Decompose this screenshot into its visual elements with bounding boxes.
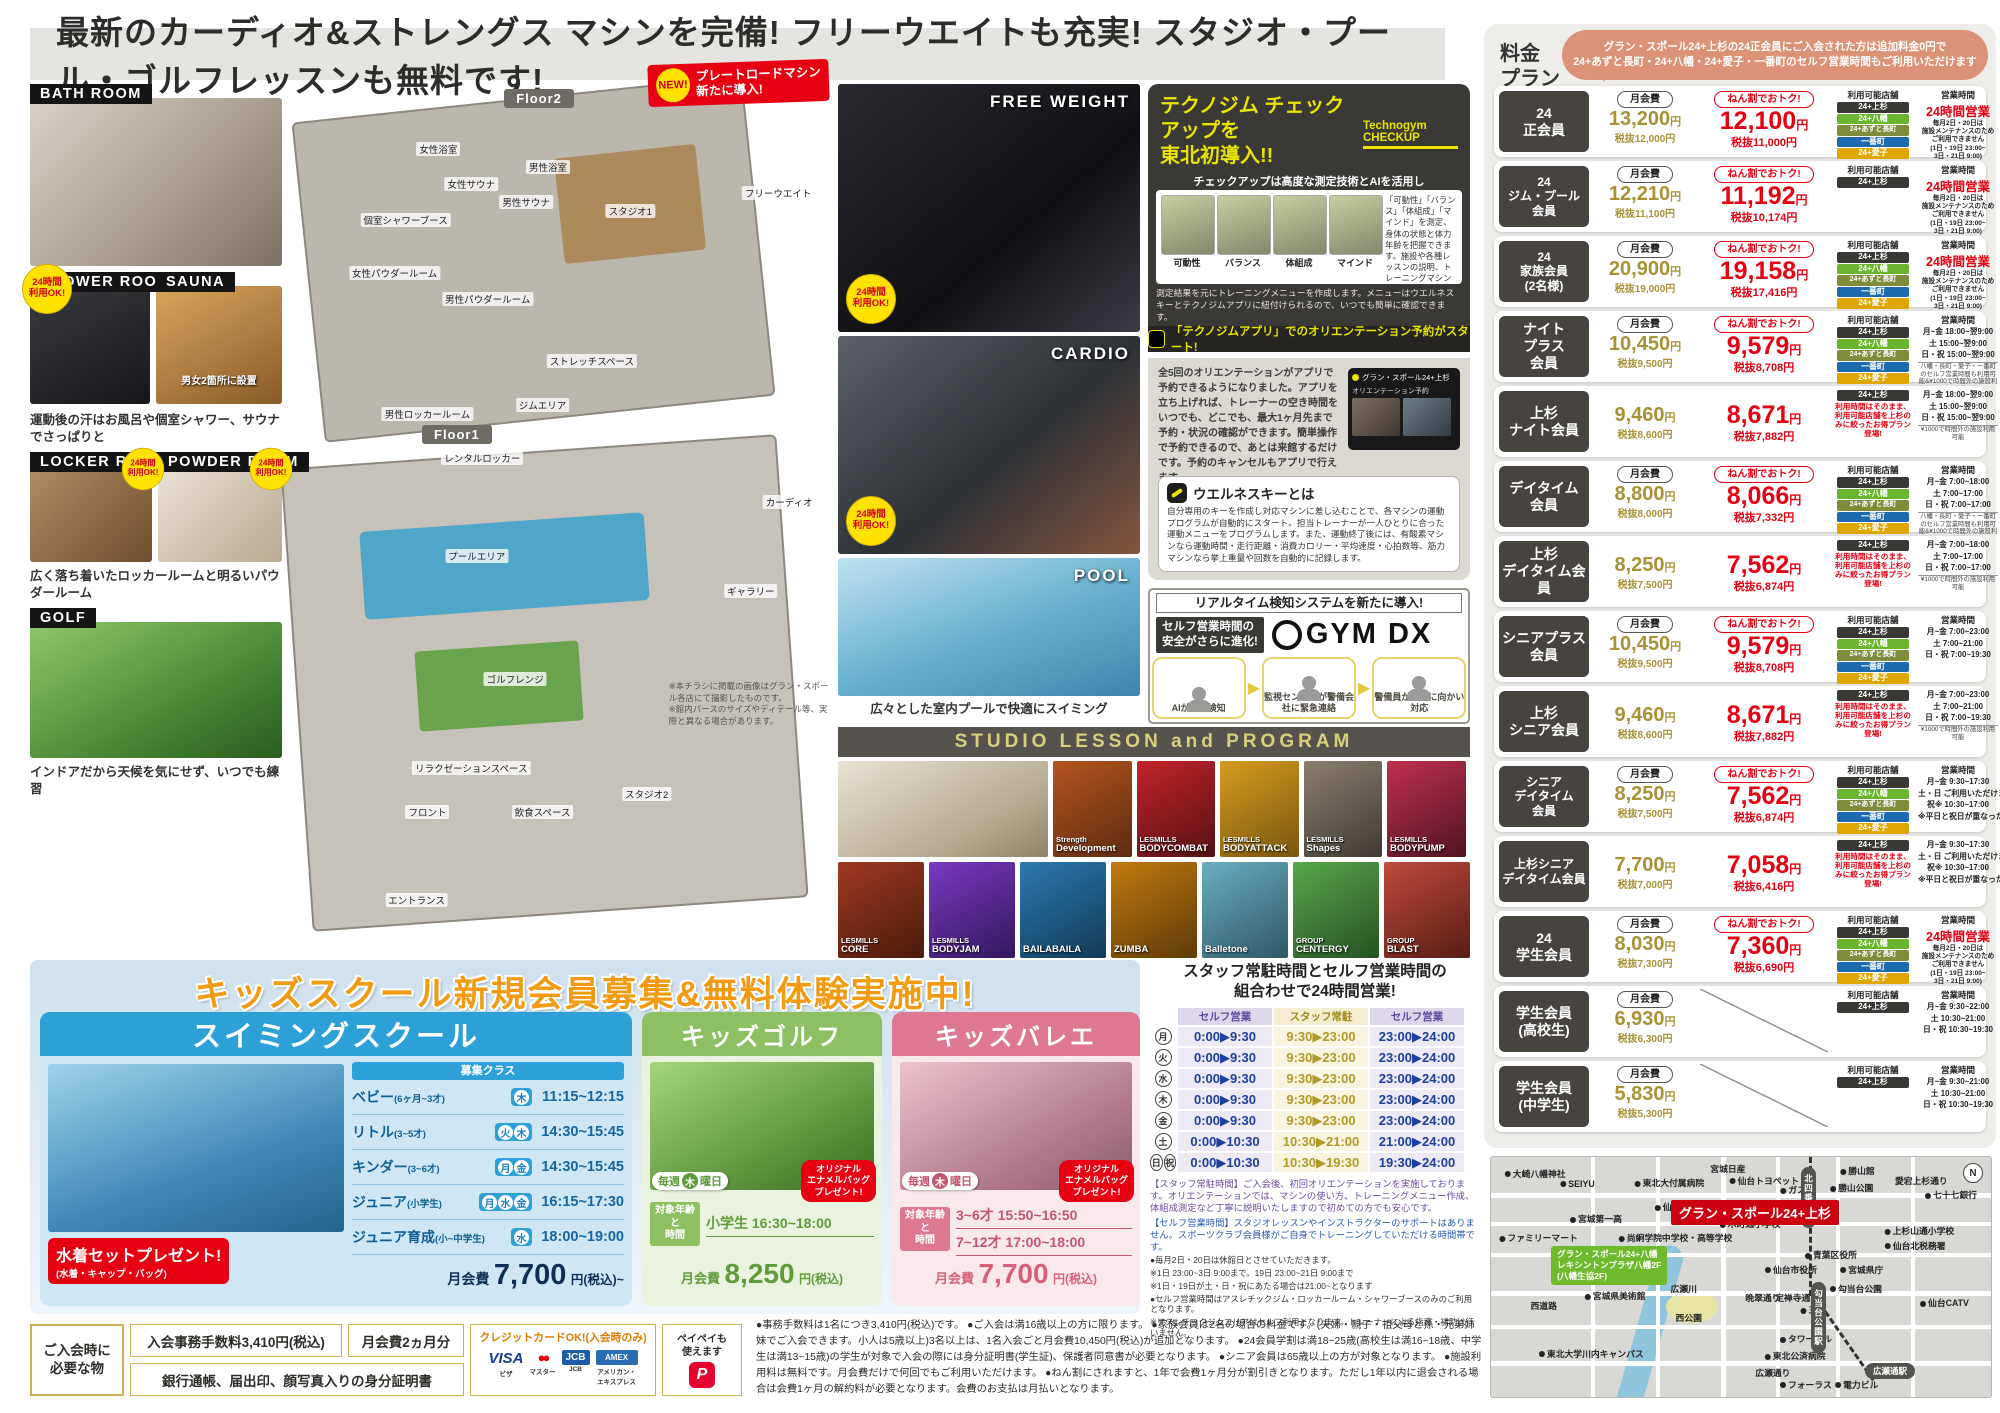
nen-price: 8,671円 [1700,702,1828,728]
hours-line: 毎月2日・20日は [1918,270,1998,278]
yen-label: 円 [1665,1016,1676,1028]
nen-price-value: 12,100 [1720,107,1796,135]
floor-room-label: 男性ロッカールーム [382,407,473,421]
monthly-price-value: 8,250 [1614,783,1664,805]
swim-class-row: ジュニア(小学生)月水金16:15~17:30 [352,1185,624,1220]
hours-header: 営業時間 [1918,239,1998,251]
yen-label: 円 [1789,643,1801,657]
technogym-measure-box: 可動性バランス体組成マインド 「可動性」「バランス」「体組成」「マインド」を測定… [1156,190,1462,284]
schedule-row: 木0:00▶9:309:30▶23:0023:00▶24:00 [1150,1090,1480,1109]
cardio-photo: CARDIO 24時間利用OK! [838,336,1140,554]
nen-price: 8,671円 [1700,402,1828,428]
footer-monthly-box: 月会費2ヵ月分 [348,1324,464,1357]
gymdx-arrow-icon: ▶ [1248,678,1260,698]
technogym-title-line1: テクノジム チェックアップを [1160,94,1363,144]
hours-line: ※平日と祝日が重なった場合 [1918,874,1998,886]
store-chip: 一番町 [1837,662,1909,673]
footer-credit-box: クレジットカードOK!(入会時のみ) VISAビザ●●マスターJCBJCBAME… [470,1324,656,1396]
person-icon [1302,676,1316,690]
technogym-panel: テクノジム チェックアップを 東北初導入!! Technogym CHECKUP… [1148,84,1470,352]
map-place-label: 青葉区役所 [1805,1248,1857,1261]
nen-price: 7,058円 [1700,852,1828,878]
map-place-dot [1780,1337,1786,1343]
plan-stores-col: 利用可能店舗24+上杉24+八幡24+あずと長町一番町24+愛子 [1832,914,1914,984]
plan-nen-col: ねん割でおトク!12,100円税抜11,000円 [1700,89,1828,150]
swim-present-sub: (水着・キャップ・バッグ) [56,1266,221,1280]
store-chip: 24+あずと長町 [1837,950,1909,961]
app-screenshot: グラン・スポール24+上杉 オリエンテーション予約 [1348,368,1460,450]
plan-name-line: 学生会員 [1516,947,1572,964]
map-place-label: 東北大学川内キャンパス [1539,1347,1644,1360]
hours-header: 営業時間 [1918,989,1998,1001]
plan-stores-col: 利用可能店舗24+上杉 [1832,989,1914,1013]
app-shot-thumb [1403,398,1451,436]
map-place-label: SEIYU [1560,1179,1594,1189]
plan-nen-col: 7,058円税抜6,416円 [1700,839,1828,894]
wellness-key-title: ウエルネスキーとは [1193,483,1315,503]
schedule-time-cell: 0:00▶9:30 [1178,1027,1272,1046]
floor-room-label: 個室シャワーブース [360,213,450,227]
floor-room-label: リラクゼーションスペース [412,761,530,775]
day-circle: 金 [514,1195,529,1210]
stores-header: 利用可能店舗 [1832,89,1914,101]
price-panel: 料金プラン 24正会員月会費13,200円税抜12,000円ねん割でおトク!12… [1484,24,1996,1148]
store-chip: 24+上杉 [1837,840,1909,851]
stores-header: 利用可能店舗 [1832,1064,1914,1076]
yen-label: 円 [1665,862,1676,874]
plan-nen-col: 7,562円税抜6,874円 [1700,539,1828,594]
swim-photo [48,1064,344,1232]
floor-room-label: 女性サウナ [445,177,499,191]
hours-24-big: 24時間営業 [1918,251,1998,270]
hours-line: 3日・21日 9:00) [1918,303,1998,311]
kids-class-row: 小学生 16:30~18:00 [706,1210,874,1237]
monthly-price-value: 8,800 [1614,483,1664,505]
day-circle: 祝 [1164,1154,1177,1171]
price-plan-row: 24正会員月会費13,200円税抜12,000円ねん割でおトク!12,100円税… [1494,86,1986,157]
store-chip: 24+上杉 [1837,1002,1909,1013]
price-plan-row: シニアデイタイム会員月会費8,250円税抜7,500円ねん割でおトク!7,562… [1494,761,1986,832]
map-place-dot [1539,1351,1545,1357]
card-logo-item: ●●マスター [530,1350,556,1376]
plan-nen-col: ねん割でおトク!9,579円税抜8,708円 [1700,614,1828,675]
price-plan-row: デイタイム会員月会費8,800円税抜8,000円ねん割でおトク!8,066円税抜… [1494,461,1986,532]
schedule-time-cell: 23:00▶24:00 [1370,1090,1464,1109]
monthly-fee-header: 月会費 [1617,766,1673,783]
map-place-label: フォーラス [1780,1378,1832,1391]
schedule-time-cell: 10:30▶19:30 [1274,1153,1368,1172]
plan-name-line: 会員 [1530,497,1558,514]
plan-name-line: 上杉 [1530,405,1558,422]
monthly-tax-line: 税抜9,500円 [1593,355,1697,370]
gymdx-step: 監視センターが警備会社に緊急連絡 [1262,657,1356,719]
day-circle: 日 [1150,1154,1163,1171]
gymdx-panel: リアルタイム検知システムを新たに導入! セルフ営業時間の 安全がさらに進化! G… [1148,588,1470,724]
day-circle: 月 [1155,1028,1172,1045]
map-road [1491,1325,1991,1329]
schedule-header-cell: セルフ営業 [1370,1008,1464,1025]
map-place-dot [1800,1308,1806,1314]
program-name-label: Balletone [1205,945,1285,955]
plan-name-line: 正会員 [1523,122,1565,139]
hours-line: 月~金 7:00~18:00 [1918,476,1998,488]
class-days: 木 [511,1088,532,1106]
plan-hours-col: 月~金 18:00~翌9:00土 15:00~翌9:00日・祝 15:00~翌9… [1918,389,1998,441]
program-name-label: BODYPUMP [1390,844,1463,854]
price-plan-row: ナイトプラス会員月会費10,450円税抜9,500円ねん割でおトク!9,579円… [1494,311,1986,382]
hours-24-big: 24時間営業 [1918,101,1998,120]
studio-program-tile: Balletone [1202,862,1288,958]
card-logo-sub: マスター [530,1366,556,1376]
schedule-day: 木 [1150,1091,1176,1108]
technogym-item-label: 体組成 [1273,256,1325,269]
map-station-pill: 広瀬通駅 [1865,1363,1915,1379]
plan-monthly-col: 月会費5,830円税抜5,300円 [1593,1064,1697,1120]
plan-name-line: (2名様) [1525,279,1564,293]
day-circle: 月 [482,1195,497,1210]
nen-price-value: 8,066 [1727,482,1790,510]
schedule-time-cell: 0:00▶9:30 [1178,1069,1272,1088]
footer-required-label: ご入会時に必要な物 [30,1324,124,1396]
monthly-header-space [1593,389,1697,404]
floor-room-label: 男性パウダールーム [442,292,533,306]
schedule-time-cell: 0:00▶9:30 [1178,1048,1272,1067]
monthly-price-value: 20,900 [1609,258,1670,280]
store-chip: 24+八幡 [1837,489,1909,500]
plan-stores-col: 利用可能店舗24+上杉24+八幡24+あずと長町一番町24+愛子 [1832,314,1914,384]
nen-header: ねん割でおトク! [1714,241,1813,258]
hours-line: 土 7:00~21:00 [1918,638,1998,650]
nen-header: ねん割でおトク! [1714,916,1813,933]
card-logo: ●● [530,1350,556,1365]
map-place-label: 仙台CATV [1920,1296,1969,1309]
swim-fee: 月会費 7,700 円(税込)~ [352,1259,624,1292]
map-place-label: 西道路 [1530,1299,1556,1312]
yen-label: 円 [1670,266,1681,278]
kids-golf-target: 対象年齢と時間 小学生 16:30~18:00 [650,1202,874,1246]
target-label: 対象年齢と時間 [650,1202,700,1246]
program-name-label: Development [1056,844,1129,854]
floor-room-label: スタジオ2 [622,787,671,801]
wellness-key-box: ウエルネスキーとは 自分専用のキーを作成し対応マシンに差し込むことで、各マシンの… [1158,476,1460,572]
stores-header: 利用可能店舗 [1832,464,1914,476]
class-name: キンダー [352,1159,408,1175]
hours-line: 土 7:00~21:00 [1918,701,1998,713]
weekly-prefix: 毎週 [908,1173,930,1189]
hours-line: ご利用できません [1918,286,1998,294]
day-circle: 土 [1155,1133,1172,1150]
gymdx-logo-text: GYM DX [1306,618,1432,651]
floor-room-label: 女性浴室 [416,142,460,156]
floor-room-label: ゴルフレンジ [484,672,547,686]
footer-docs-box: 銀行通帳、届出印、顔写真入りの身分証明書 [130,1363,464,1396]
yen-label: 円 [1789,712,1801,726]
plan-name-line: 会員 [1530,355,1558,372]
floor-disclaimer-line1: ※本チラシに掲載の画像はグラン・スポール各店にて撮影したものです。 [669,681,833,704]
map-place-label: 尚絅学院中学校・高等学校 [1619,1231,1733,1244]
gymdx-arrow-icon: ▶ [1358,678,1370,698]
floor2-chip: Floor2 [504,89,574,108]
price-plan-row: 上杉ナイト会員9,460円税抜8,600円8,671円税抜7,882円24+上杉… [1494,386,1986,457]
day-circle: 火 [498,1125,513,1140]
monthly-tax-line: 税抜7,300円 [1593,955,1697,970]
plan-name-line: シニア [1526,775,1562,789]
yen-label: 円 [1665,562,1676,574]
swim-fee-value: 7,700 [494,1259,567,1291]
kids-ballet-weekday-badge: 毎週 木 曜日 [902,1172,978,1190]
monthly-price: 7,700円 [1593,854,1697,876]
sauna-photo: 男女2箇所に設置 [156,286,282,404]
monthly-tax-line: 税抜8,600円 [1593,426,1697,441]
hours-line: (1日・19日 23:00~ [1918,145,1998,153]
plan-name-line: ナイト会員 [1509,422,1579,439]
app-shot-titlebar: グラン・スポール24+上杉 [1352,372,1456,383]
studio-program-tile: GROUPBLAST [1384,862,1470,958]
plan-monthly-col: 月会費20,900円税抜19,000円 [1593,239,1697,295]
hours-line: 日・祝 7:00~19:30 [1918,712,1998,724]
program-name-label: BODYATTACK [1223,844,1296,854]
monthly-tax-line: 税抜12,000円 [1593,130,1697,145]
yen-label: 円 [1789,943,1801,957]
map-road [1721,1157,1726,1397]
new-badge: NEW! [655,68,690,103]
map-place-dot [1780,1188,1786,1194]
monthly-price-value: 13,200 [1609,108,1670,130]
app-shot-logo-dot [1352,374,1359,381]
store-chip: 24+上杉 [1837,477,1909,488]
monthly-fee-header: 月会費 [1617,1066,1673,1083]
plan-nen-col: ねん割でおトク!9,579円税抜8,708円 [1700,314,1828,375]
map-place-label: 東北大付属病院 [1635,1176,1705,1189]
map-place-dot [1560,1181,1566,1187]
studio-program-grid: StrengthDevelopmentLESMILLSBODYCOMBATLES… [838,761,1470,958]
plan-stores-col: 利用可能店舗24+上杉24+八幡24+あずと長町一番町24+愛子 [1832,764,1914,834]
map-place-label: 勝山館 [1840,1164,1874,1177]
kids-golf-title: キッズゴルフ [642,1012,882,1056]
swim-class-row: リトル(3~5才)火木14:30~15:45 [352,1115,624,1150]
map-place-label: ファミリーマート [1499,1231,1577,1244]
monthly-fee-header: 月会費 [1617,616,1673,633]
nen-header: ねん割でおトク! [1714,316,1813,333]
new-tag-text: プレートロードマシン 新たに導入! [696,65,822,99]
map-place-dot [1730,1178,1736,1184]
floor-disclaimer: ※本チラシに掲載の画像はグラン・スポール各店にて撮影したものです。 ※館内パース… [669,681,833,727]
plan-stores-col: 利用可能店舗24+上杉24+八幡24+あずと長町一番町24+愛子 [1832,614,1914,684]
plan-name-line: 上杉 [1530,705,1558,722]
studio-program-tile: LESMILLSCORE [838,862,924,958]
map-place-dot [1765,1267,1771,1273]
store-chip: 24+あずと長町 [1837,275,1909,286]
technogym-item-photo [1273,195,1327,255]
plan-hours-col: 営業時間月~金 7:00~18:00土 7:00~17:00日・祝 7:00~1… [1918,464,1998,543]
store-chip: 24+愛子 [1837,523,1909,534]
nen-header: ねん割でおトク! [1714,766,1813,783]
schedule-time-cell: 23:00▶24:00 [1370,1069,1464,1088]
monthly-price: 13,200円 [1593,108,1697,130]
cardio-label: CARDIO [1051,344,1130,364]
monthly-price-value: 12,210 [1609,183,1670,205]
nen-tax-line: 税抜6,690円 [1700,959,1828,975]
plan-name-line: シニア会員 [1509,722,1579,739]
class-name: ジュニア [352,1194,407,1210]
plan-nen-col: ねん割でおトク!11,192円税抜10,174円 [1700,164,1828,225]
hours-line: 日・祝 7:00~17:00 [1918,499,1998,511]
plan-monthly-col: 月会費10,450円税抜9,500円 [1593,314,1697,370]
schedule-header-row: セルフ営業スタッフ常駐セルフ営業 [1178,1008,1480,1025]
monthly-header-space [1593,689,1697,704]
monthly-tax-line: 税抜6,300円 [1593,1030,1697,1045]
monthly-tax-line: 税抜7,000円 [1593,876,1697,891]
class-name: リトル [352,1124,394,1140]
gymdx-left-line1: セルフ営業時間の [1162,621,1254,633]
schedule-day: 金 [1150,1112,1176,1129]
plan-hours-col: 月~金 7:00~18:00土 7:00~17:00日・祝 7:00~17:00… [1918,539,1998,591]
nen-tax-line: 税抜6,416円 [1700,878,1828,894]
class-age: (3~5才) [394,1129,426,1140]
swim-title: スイミングスクール [40,1012,632,1056]
nen-header: ねん割でおトク! [1714,91,1813,108]
monthly-price: 20,900円 [1593,258,1697,280]
store-chip: 24+上杉 [1837,690,1909,701]
gymdx-logo: GYM DX [1272,618,1432,651]
monthly-price: 8,250円 [1593,554,1697,576]
monthly-tax-line: 税抜8,600円 [1593,726,1697,741]
store-chip: 24+八幡 [1837,339,1909,350]
footer-paypay-box: ペイペイも使えます P [662,1324,742,1396]
stores-header: 利用可能店舗 [1832,989,1914,1001]
monthly-fee-header: 月会費 [1617,916,1673,933]
program-name-label: CENTERGY [1296,945,1376,955]
technogym-item-label: 可動性 [1161,256,1213,269]
badge-24h-powder: 24時間利用OK! [250,448,293,491]
day-circle: 火 [1155,1049,1172,1066]
credit-title: クレジットカードOK!(入会時のみ) [479,1329,646,1345]
hours-line: 日・祝 7:00~17:00 [1918,562,1998,574]
nen-header: ねん割でおトク! [1714,616,1813,633]
nen-tax-line: 税抜7,332円 [1700,509,1828,525]
sauna-note: 男女2箇所に設置 [156,286,282,387]
store-chip: 24+あずと長町 [1837,650,1909,661]
swim-class-row: キンダー(3~6才)月金14:30~15:45 [352,1150,624,1185]
schedule-panel: スタッフ常駐時間とセルフ営業時間の組合わせで24時間営業! セルフ営業スタッフ常… [1150,962,1480,1341]
plan-name: シニアデイタイム会員 [1499,766,1589,827]
hours-line: 月~金 18:00~翌9:00 [1918,326,1998,338]
schedule-note: 【スタッフ常駐時間】ご入会後、初回オリエンテーションを実施しております。オリエン… [1150,1178,1480,1214]
hours-line: 日・祝 7:00~19:30 [1918,649,1998,661]
class-age: (小~中学生) [435,1234,485,1245]
hours-line: 月~金 18:00~翌9:00 [1918,389,1998,401]
hours-line: 月~金 9:30~22:00 [1918,1001,1998,1013]
map-place-label: 宮城第一高 [1570,1212,1622,1225]
plan-hours-col: 営業時間月~金 18:00~翌9:00土 15:00~翌9:00日・祝 15:0… [1918,314,1998,393]
hours-line: 日・祝 10:30~19:30 [1918,1099,1998,1111]
schedule-header-cell: スタッフ常駐 [1274,1008,1368,1025]
weekly-day: 木 [682,1173,698,1189]
store-chip: 24+愛子 [1837,148,1909,159]
monthly-price: 12,210円 [1593,183,1697,205]
map-place-dot [1635,1181,1641,1187]
schedule-row: 火0:00▶9:309:30▶23:0023:00▶24:00 [1150,1048,1480,1067]
map-place-dot [1805,1253,1811,1259]
floor-room-label: エントランス [385,893,448,907]
monthly-tax-line: 税抜5,300円 [1593,1105,1697,1120]
nen-price-value: 9,579 [1727,632,1790,660]
technogym-item-photo [1217,195,1271,255]
badge-24h-freeweight: 24時間利用OK! [846,274,896,324]
plan-monthly-col: 8,250円税抜7,500円 [1593,539,1697,591]
studio-program-tile: LESMILLSBODYJAM [929,862,1015,958]
plan-name: ナイトプラス会員 [1499,316,1589,377]
kids-ballet-rows: 3~6才 15:50~16:507~12才 17:00~18:00 [956,1202,1132,1256]
plan-nen-col: ねん割でおトク!7,562円税抜6,874円 [1700,764,1828,825]
schedule-time-cell: 9:30▶23:00 [1274,1069,1368,1088]
schedule-time-cell: 9:30▶23:00 [1274,1027,1368,1046]
hours-line: 日・祝 15:00~翌9:00 [1918,349,1998,361]
price-plan-row: 上杉デイタイム会員8,250円税抜7,500円7,562円税抜6,874円24+… [1494,536,1986,607]
plan-hours-col: 営業時間月~金 9:30~22:00土 10:30~21:00日・祝 10:30… [1918,989,1998,1036]
hours-line: 3日・21日 9:00) [1918,978,1998,986]
nen-price-value: 7,360 [1727,932,1790,960]
plan-stores-col: 24+上杉利用時間はそのまま、利用可能店舗を上杉のみに絞ったお得プラン登場! [1832,389,1914,438]
new-tag-line2: 新たに導入! [696,82,763,98]
floor-room-label: カーディオ [763,495,816,509]
weekly-suffix: 曜日 [950,1173,972,1189]
nen-tax-line: 税抜17,416円 [1700,284,1828,300]
class-days: 水 [511,1228,532,1246]
map-place-label: 勾当台公園 [1830,1282,1882,1295]
plan-monthly-col: 月会費10,450円税抜9,500円 [1593,614,1697,670]
map-station-pill: 勾当台公園駅 [1811,1282,1826,1353]
schedule-time-cell: 0:00▶9:30 [1178,1090,1272,1109]
studio-program-tile: BAILABAILA [1020,862,1106,958]
swim-class-name: ジュニア(小学生) [352,1192,479,1212]
plan-name-line: 24 [1536,105,1552,122]
map-place-dot [1505,1171,1511,1177]
card-logo-item: VISAビザ [488,1350,523,1378]
schedule-time-cell: 23:00▶24:00 [1370,1111,1464,1130]
hours-extra-note: ¥1000で時間外の施設利用可能 [1918,425,1998,441]
day-circle: 金 [1155,1112,1172,1129]
stores-header: 利用可能店舗 [1832,614,1914,626]
studio-photo-tile [838,761,1048,857]
plan-monthly-col: 月会費6,930円税抜6,300円 [1593,989,1697,1045]
plan-name-line: (中学生) [1518,1097,1569,1114]
studio-program-tile: ZUMBA [1111,862,1197,958]
plan-name: 24学生会員 [1499,916,1589,977]
card-logo-item: AMEXアメリカン・エキスプレス [596,1350,638,1386]
technogym-banner-text: 「テクノジムアプリ」でのオリエンテーション予約がスタート! [1171,323,1470,355]
bath-room-label: BATH ROOM [30,84,152,104]
map-place-dot [1830,1286,1836,1292]
map-place-label: 西公園 [1675,1311,1701,1324]
store-chip: 24+愛子 [1837,373,1909,384]
compass-icon: N [1963,1163,1983,1183]
plan-monthly-col: 9,460円税抜8,600円 [1593,689,1697,741]
person-icon [1412,676,1426,690]
plan-hours-col: 月~金 9:30~17:30土・日 ご利用いただけません祝※ 10:30~17:… [1918,839,1998,886]
monthly-price-value: 6,930 [1614,1008,1664,1030]
program-name-label: BODYCOMBAT [1140,844,1213,854]
plan-name: 24ジム・プール会員 [1499,166,1589,227]
pool-photo: POOL [838,558,1140,696]
bath-room-photo [30,98,282,266]
badge-24h-line2: 利用OK! [29,289,65,300]
monthly-price-value: 9,460 [1614,404,1664,426]
monthly-price: 10,450円 [1593,333,1697,355]
hours-line: ご利用できません [1918,211,1998,219]
floor-room-label: プールエリア [445,549,508,563]
map-place-dot [1835,1382,1841,1388]
